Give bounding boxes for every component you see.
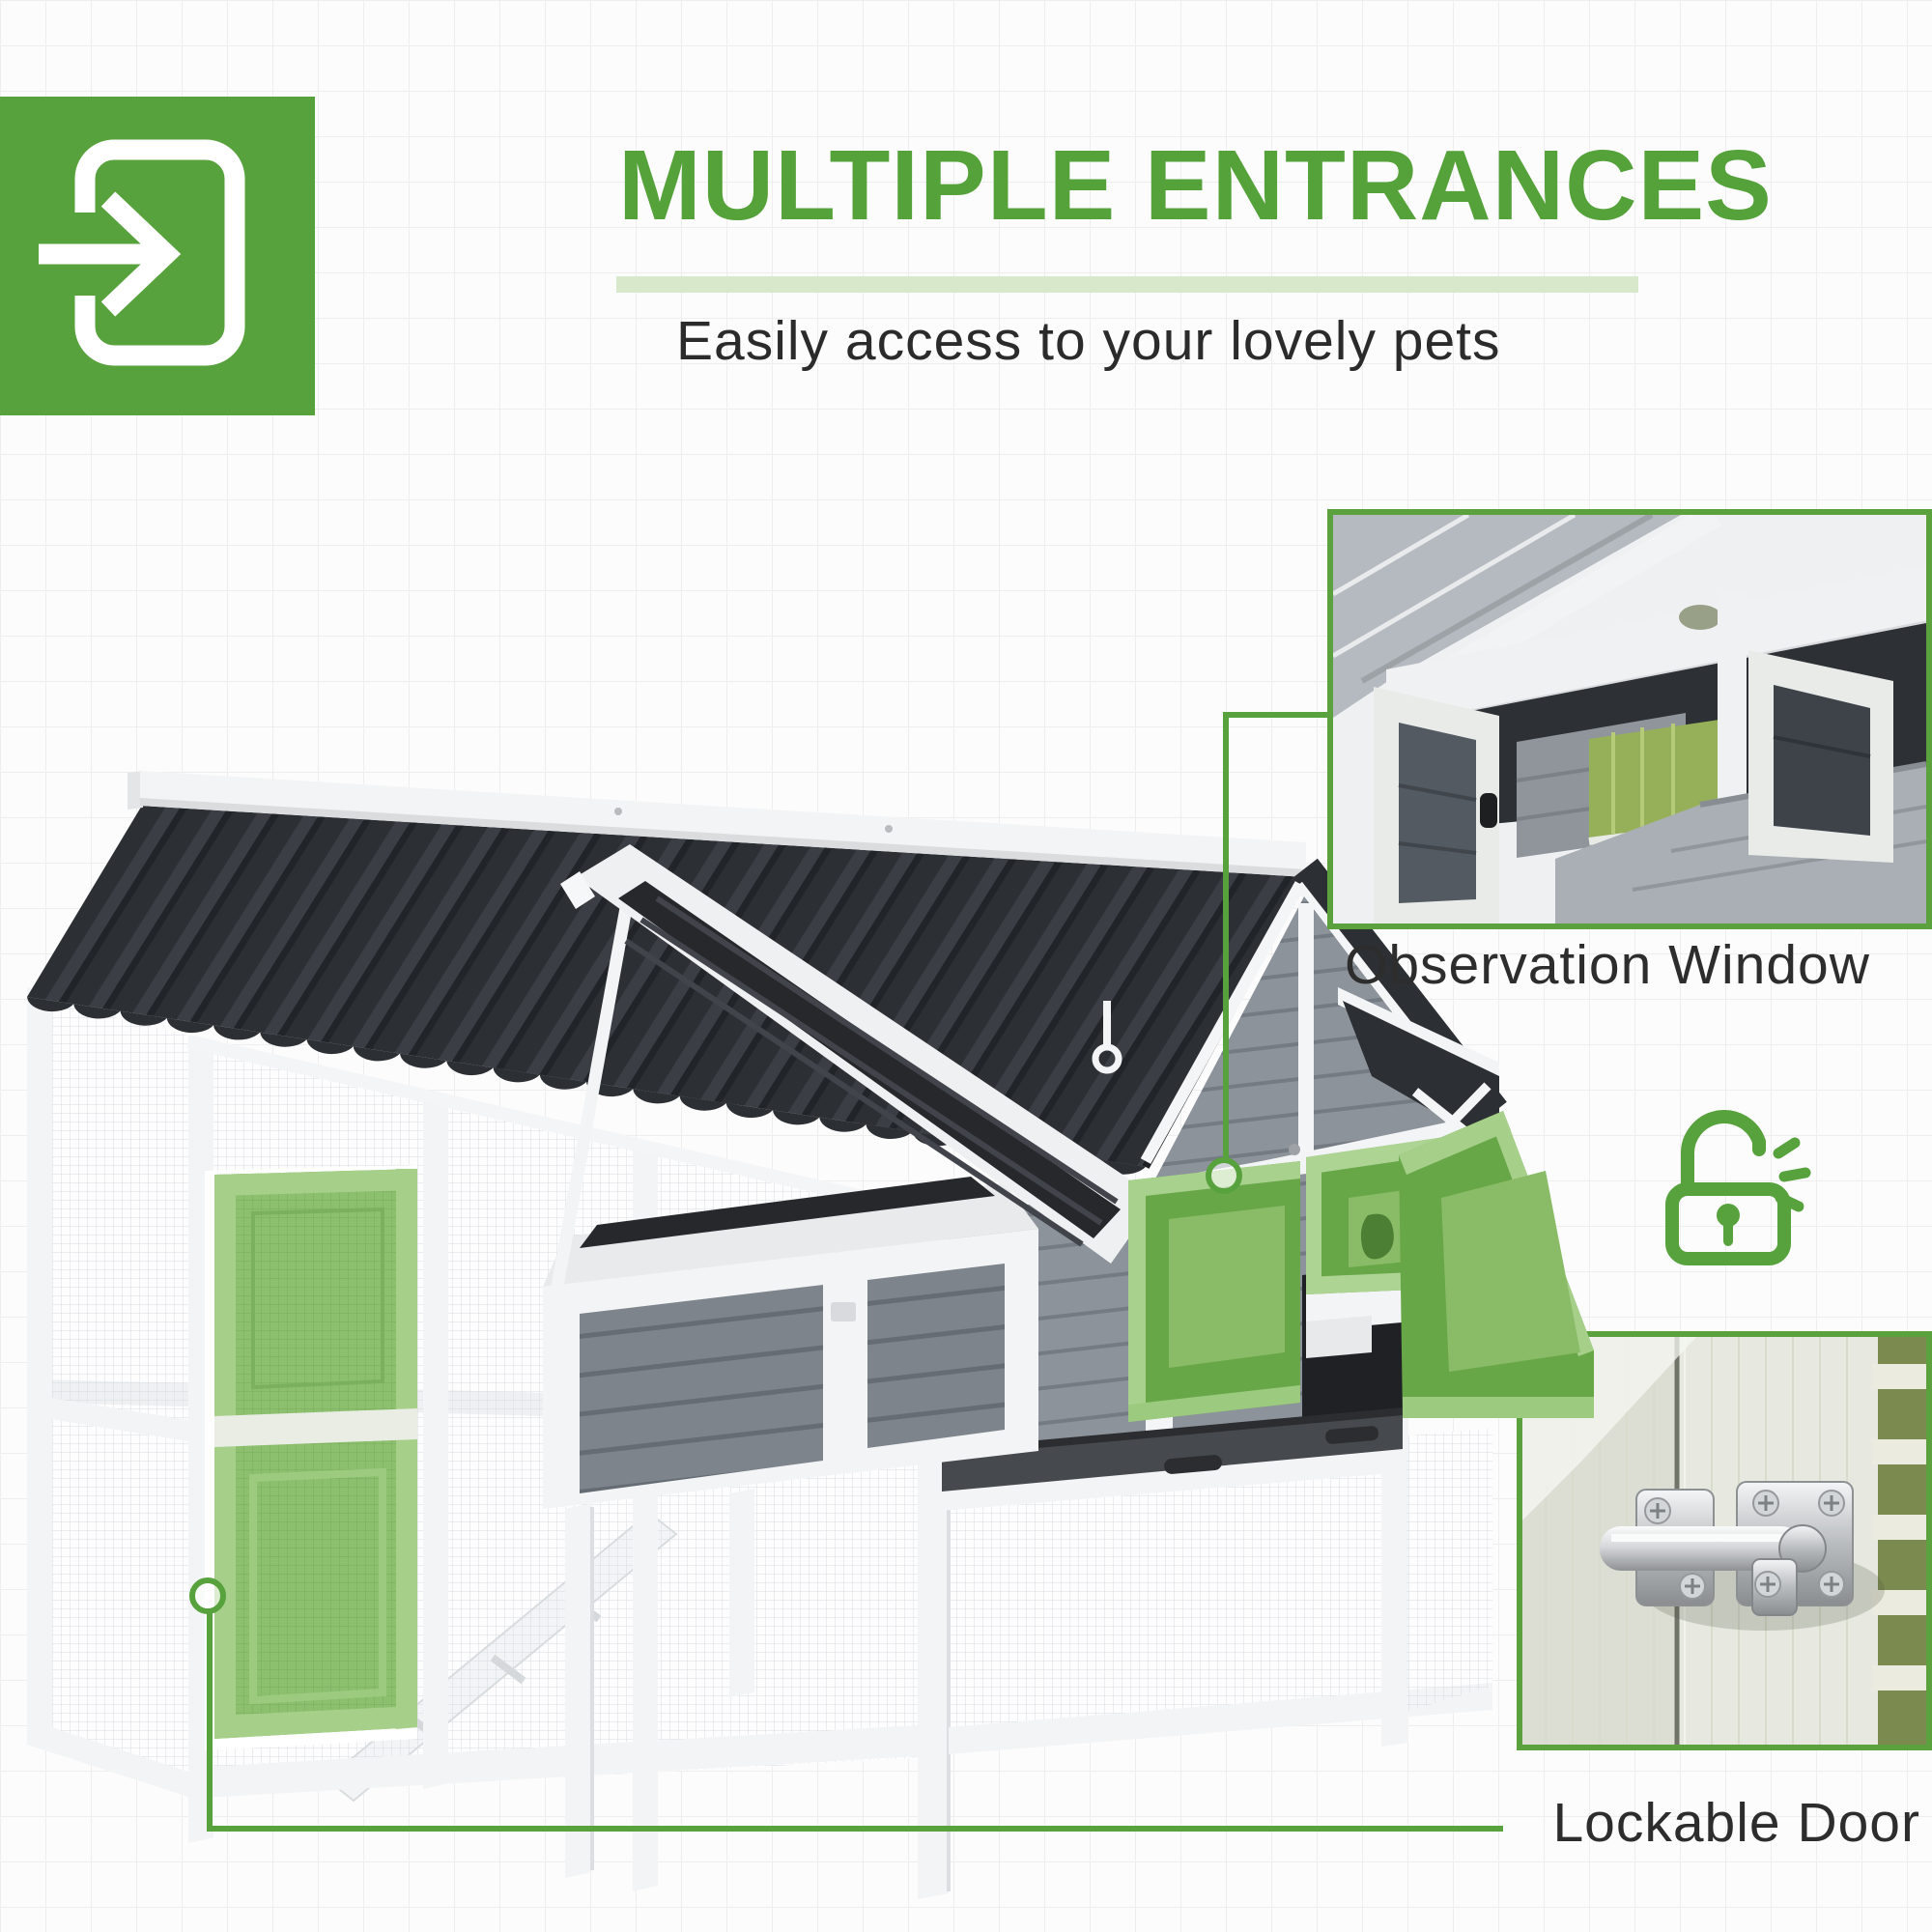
connector-line-observation-window bbox=[1226, 715, 1327, 1159]
connector-line-lockable-door bbox=[210, 1611, 1503, 1829]
product-feature-infographic: MULTIPLE ENTRANCES Easily access to your… bbox=[0, 0, 1932, 1932]
circle-marker-nest-door bbox=[1208, 1160, 1239, 1191]
callout-overlay bbox=[0, 0, 1932, 1932]
circle-marker-run-door bbox=[192, 1580, 223, 1611]
nest-door-open-lower-highlighted bbox=[1399, 1111, 1594, 1418]
